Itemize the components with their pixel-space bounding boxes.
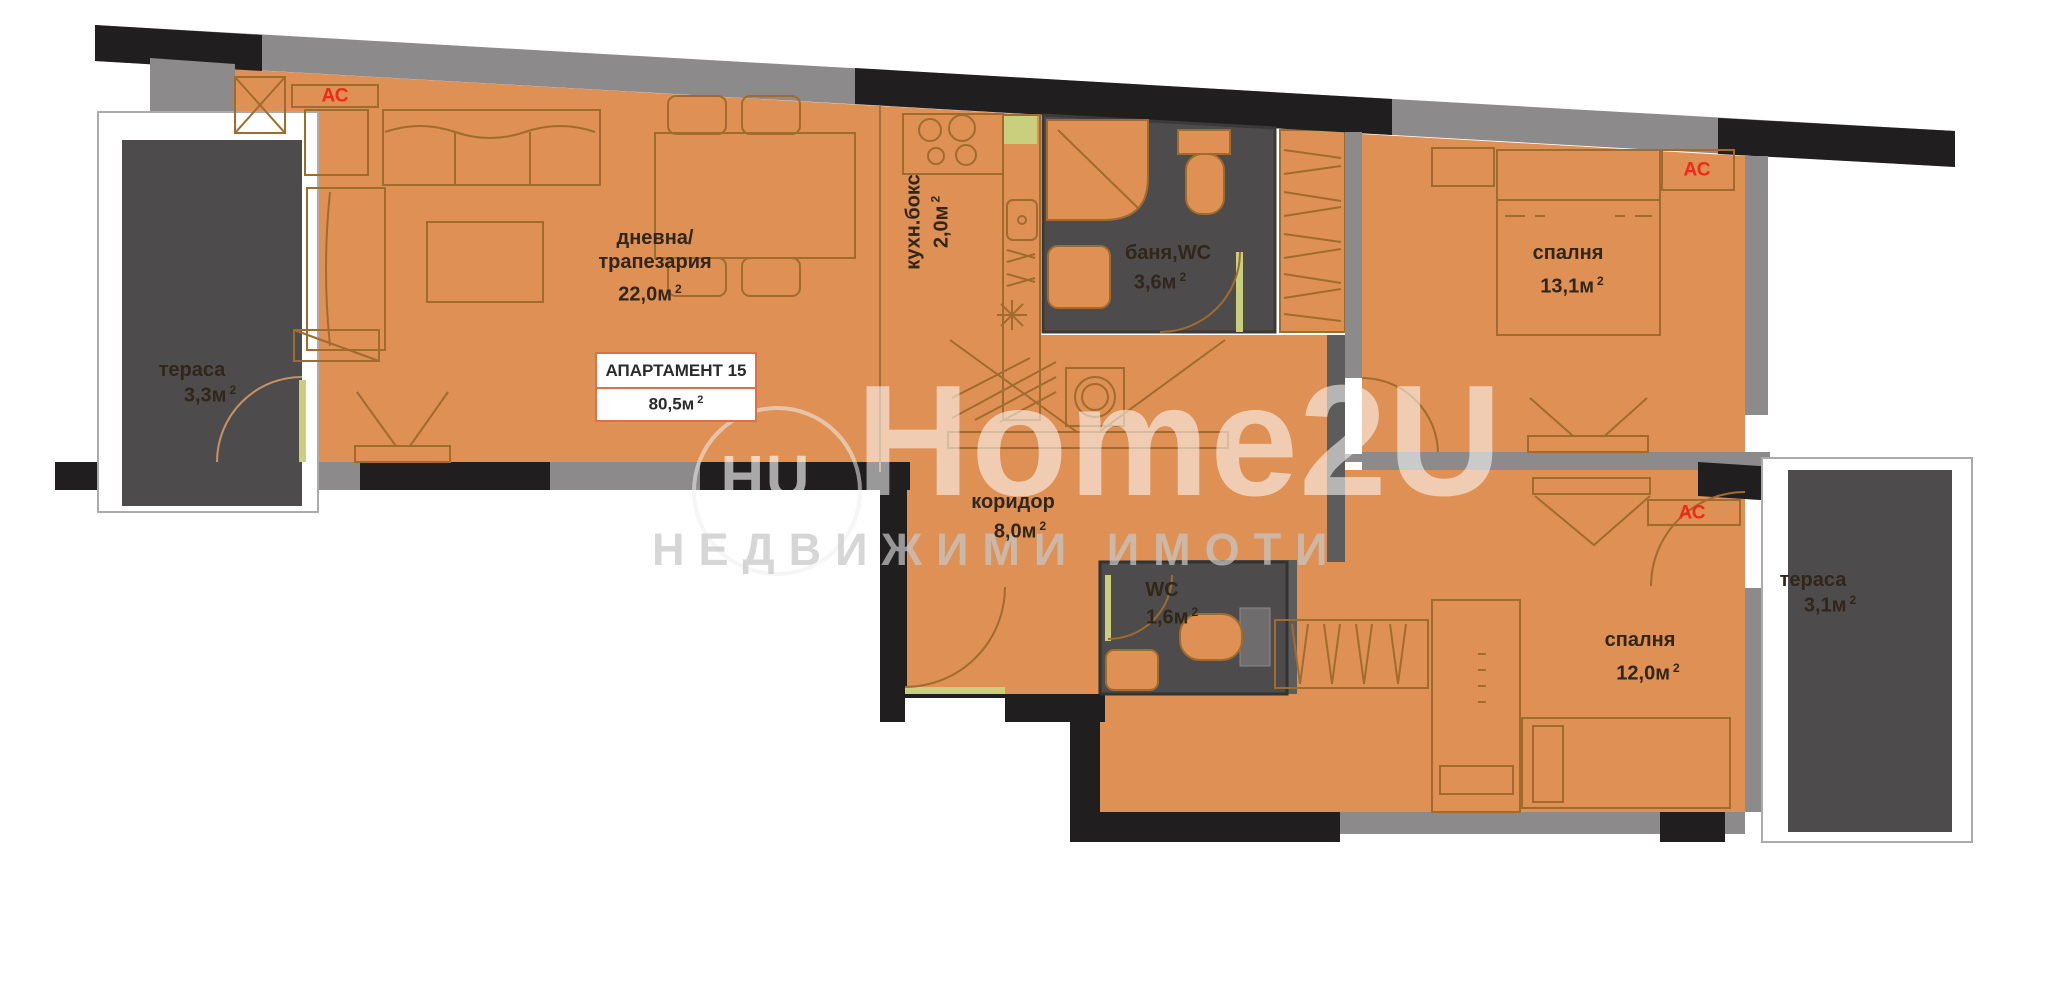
terrace-right-label: тераса (1780, 570, 1847, 590)
bath-sink (1048, 246, 1110, 308)
closet-column (1280, 130, 1345, 332)
living-area: 22,0м2 (618, 283, 681, 305)
kitchen-vent (1003, 116, 1037, 144)
watermark-logo-text: HU (721, 443, 812, 512)
wc-toilet-tank (1240, 608, 1270, 666)
bath-label: баня,WC (1125, 243, 1211, 263)
bedroom1-area: 13,1м2 (1540, 275, 1603, 297)
ac-label-bedroom1: АС (1684, 161, 1711, 180)
bedroom1-label: спалня (1533, 243, 1604, 263)
living-label-line1: дневна/ (617, 228, 694, 248)
apartment-area: 80,5м2 (597, 389, 755, 420)
ac-label-bedroom2: АС (1679, 504, 1706, 523)
terrace-left-label: тераса (159, 360, 226, 380)
terrace-right-area: 3,1м2 (1804, 594, 1856, 616)
bedroom2-area: 12,0м2 (1616, 662, 1679, 684)
bedroom2-label: спалня (1605, 630, 1676, 650)
wc-sink (1106, 650, 1158, 690)
wc-room (1100, 562, 1287, 694)
floor-plan-page: HU 2 Home2U НЕДВИЖИМИ ИМОТИ АПАРТАМЕНТ 1… (0, 0, 2047, 1000)
terrace-left (98, 112, 318, 512)
apartment-title: АПАРТАМЕНТ 15 (597, 354, 755, 389)
toilet-tank (1178, 130, 1230, 154)
kitchen-label: кухн.бокс 2,0м2 (901, 174, 956, 270)
corridor-label: коридор (971, 492, 1055, 512)
toilet-bowl (1186, 154, 1224, 214)
terrace-left-area: 3,3м2 (184, 384, 236, 406)
wc-area: 1,6м2 (1146, 606, 1198, 628)
bath-area: 3,6м2 (1134, 271, 1186, 293)
bathroom (1043, 115, 1275, 332)
living-label-line2: трапезария (598, 252, 711, 272)
corridor-area: 8,0м2 (994, 520, 1046, 542)
watermark-brand: Home2U (856, 362, 1503, 520)
light-symbol (997, 300, 1027, 330)
wc-label: WC (1145, 580, 1178, 600)
ac-label-living: АС (322, 87, 349, 106)
wc-door-leaf (1105, 575, 1111, 641)
apartment-info-box: АПАРТАМЕНТ 15 80,5м2 (595, 352, 757, 422)
